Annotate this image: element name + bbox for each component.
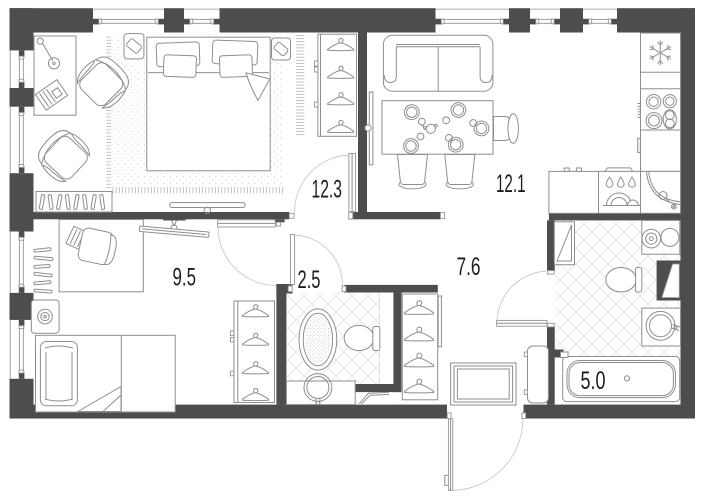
svg-text:12.1: 12.1 (496, 170, 526, 198)
svg-text:12.3: 12.3 (312, 176, 343, 204)
svg-text:9.5: 9.5 (173, 264, 197, 292)
svg-text:2.5: 2.5 (298, 266, 321, 294)
svg-text:7.6: 7.6 (457, 253, 481, 281)
svg-text:5.0: 5.0 (581, 367, 606, 395)
